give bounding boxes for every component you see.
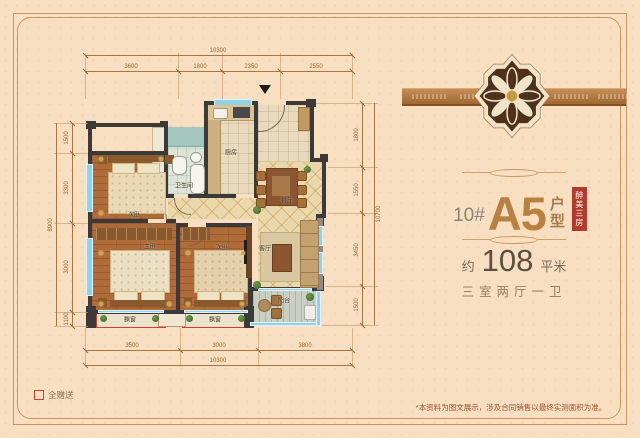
entrance-arrow-icon (259, 85, 271, 100)
shower (168, 127, 204, 147)
sofa (300, 220, 319, 288)
poster-canvas: 10# A5 户 型 醉美三房 约 108 平米 三室两厅一卫 *本资料为图文展… (0, 0, 640, 438)
room-label-bath: 卫生间 (175, 181, 193, 190)
room-label-kitchen: 厨房 (225, 148, 237, 157)
master-window (86, 238, 93, 296)
dim-bottom-total: 10300 (210, 358, 227, 364)
divider-ornament-top (462, 169, 566, 176)
divider-ornament-bottom (462, 236, 566, 243)
building-number: 10# (453, 205, 485, 227)
dim-top-total: 10300 (210, 48, 227, 54)
unit-suffix: 户 型 (550, 196, 565, 231)
plant-icon (253, 206, 261, 214)
wardrobe (96, 228, 172, 240)
stove (233, 107, 250, 118)
plant-icon (253, 281, 261, 289)
center-window-sill (158, 313, 186, 327)
unit-title: 10# A5 户 型 醉美三房 (420, 181, 620, 233)
area-value: 108 (482, 243, 534, 279)
room-label-bedroom3: 次卧 (216, 243, 228, 252)
balcony-table (258, 299, 271, 312)
gift-legend-label: 全赠送 (48, 389, 74, 401)
kitchen-sink (213, 108, 228, 119)
bed (110, 250, 170, 293)
plant-icon (304, 166, 311, 173)
balcony-rail-bottom (250, 322, 320, 326)
bathtub (190, 164, 205, 194)
room-label-master: 主卧 (144, 242, 156, 251)
room-label-dining: 餐厅 (281, 196, 293, 205)
balcony-slider-window (258, 288, 312, 291)
room-label-balcony: 阳台 (278, 296, 290, 305)
bed (108, 172, 166, 214)
washer (304, 305, 316, 320)
dim-right-total: 10700 (376, 206, 382, 223)
coffee-table (272, 244, 292, 272)
plant-icon (306, 293, 314, 301)
room-label-bay2: 飘窗 (209, 315, 221, 324)
toilet (172, 156, 187, 175)
shoe-cabinet (298, 107, 310, 131)
band-ornament (412, 94, 446, 99)
room-label-bedroom2: 次卧 (128, 210, 140, 219)
band-ornament (554, 94, 588, 99)
area-unit: 平米 (540, 256, 566, 275)
gift-legend-swatch (34, 390, 44, 400)
band-ornament (598, 94, 632, 99)
dim-left-total: 8900 (48, 218, 54, 231)
room-label-bay1: 飘窗 (124, 315, 136, 324)
bed (194, 250, 248, 293)
bedroom2-window (86, 164, 93, 212)
area-prefix: 约 (462, 256, 475, 275)
unit-code: A5 (488, 196, 546, 233)
room-label-living: 客厅 (259, 244, 271, 253)
disclaimer-text: *本资料为图文展示，涉及合同销售以最终实测面积为准。 (398, 402, 624, 413)
balcony-rail-right (316, 291, 321, 326)
layout-summary: 三室两厅一卫 (402, 281, 626, 300)
area-text: 约 108 平米 (402, 243, 626, 279)
red-seal-badge: 醉美三房 (572, 187, 587, 231)
wardrobe (182, 228, 210, 240)
bath-sink (190, 152, 202, 163)
flower-medallion-icon (474, 54, 550, 138)
kitchen-side-counter (208, 120, 221, 194)
